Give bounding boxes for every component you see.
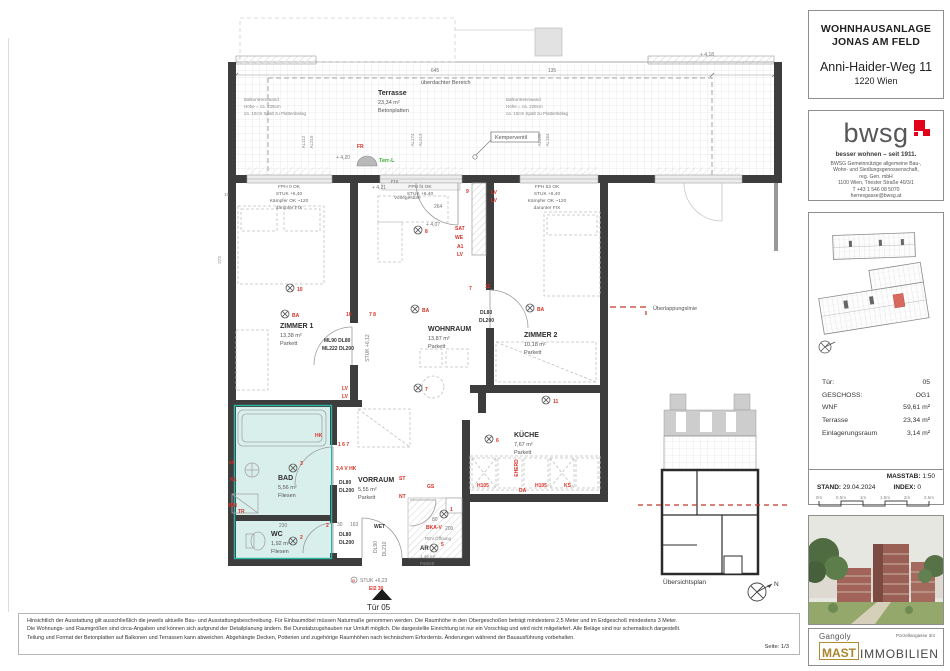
balkontrennwand-left-2: Höhe = ca. 228cm — [244, 104, 281, 109]
svg-text:3: 3 — [300, 461, 303, 467]
sanitary-highlight — [235, 406, 332, 559]
svg-text:13,38 m²: 13,38 m² — [280, 333, 302, 339]
svg-text:7,67 m²: 7,67 m² — [514, 442, 533, 448]
svg-text:Fliesen: Fliesen — [271, 549, 289, 555]
svg-text:ML222 DL200: ML222 DL200 — [322, 346, 354, 352]
room-label-ar: AR — [420, 546, 429, 552]
svg-text:N: N — [774, 581, 779, 588]
dim-645: 645 — [431, 68, 440, 74]
svg-text:163: 163 — [350, 522, 359, 528]
svg-text:DA: DA — [519, 488, 527, 494]
bwsg-block: bwsg besser wohnen – seit 1911. BWSG Gem… — [808, 110, 944, 201]
svg-text:STUK +6,12: STUK +6,12 — [365, 334, 371, 362]
al213: AL213 — [418, 133, 423, 147]
disclaimer-line: Die Wohnungs- und Raumgrößen sind circa-… — [27, 625, 799, 633]
terrasse-area: 23,34 m² — [378, 100, 400, 106]
balkontrennwand-left-1: Balkontrennwand — [244, 97, 279, 102]
room-label-wohnraum: WOHNRAUM — [428, 326, 471, 333]
info-table: Tür:05 GESCHOSS:OG1 WNF59,61 m² Terrasse… — [822, 376, 930, 440]
svg-text:TR: TR — [238, 509, 245, 515]
scale-bar: 0m 0.5m 1m 1.5m 2m 2.5m — [815, 494, 939, 508]
svg-text:0.5m: 0.5m — [836, 495, 846, 500]
highlighted-unit — [893, 293, 905, 307]
table-row: Einlagerungsraum3,14 m² — [822, 427, 930, 440]
room-label-zimmer1: ZIMMER 1 — [280, 323, 314, 330]
svg-text:LV: LV — [342, 394, 349, 400]
svg-text:GS: GS — [427, 484, 435, 490]
table-row: WNF59,61 m² — [822, 402, 930, 415]
svg-text:10: 10 — [297, 287, 303, 293]
svg-text:15: 15 — [224, 192, 230, 197]
terr-l-label: Terr-L — [379, 158, 395, 164]
plan-sheet: 645 135 + 4,18 Balkontrennwand Höhe = ca… — [0, 0, 950, 671]
al108: AL108 — [537, 133, 542, 147]
svg-text:264: 264 — [434, 204, 443, 210]
svg-text:273: 273 — [217, 256, 222, 264]
svg-text:darunter FIX: darunter FIX — [276, 205, 303, 211]
svg-text:DL200: DL200 — [479, 318, 494, 324]
svg-text:2.5m: 2.5m — [924, 495, 934, 500]
svg-text:H105: H105 — [535, 483, 547, 489]
svg-text:Parkett: Parkett — [358, 495, 376, 501]
svg-text:Kämpfer OK ~120: Kämpfer OK ~120 — [270, 198, 309, 204]
partner-block: Gangoly Porzellangasse 3/4 MAST IMMOBILI… — [808, 628, 944, 666]
terrace-area — [234, 18, 776, 175]
al164: AL164 — [545, 133, 550, 147]
al174: AL174 — [410, 133, 415, 147]
immobilien-wordmark: IMMOBILIEN — [860, 648, 939, 660]
bwsg-square-icon — [914, 132, 918, 136]
mast-wordmark: MAST — [819, 642, 859, 660]
svg-text:WET: WET — [374, 524, 385, 530]
svg-text:FIX: FIX — [391, 179, 399, 185]
svg-text:H105: H105 — [477, 483, 489, 489]
overlap-line: Überlappungslinie — [610, 305, 697, 315]
site-plan-map — [809, 214, 943, 364]
svg-text:KS: KS — [564, 483, 572, 489]
svg-text:230: 230 — [279, 523, 288, 529]
svg-text:5,56 m²: 5,56 m² — [278, 485, 297, 491]
svg-text:G: G — [352, 578, 355, 583]
installation-shaft — [472, 183, 486, 255]
svg-text:7: 7 — [425, 387, 428, 393]
level-420: + 4,20 — [336, 155, 350, 161]
svg-text:Parkett: Parkett — [428, 344, 446, 350]
svg-text:A1: A1 — [457, 244, 464, 250]
svg-text:BA: BA — [292, 313, 300, 319]
project-street: Anni-Haider-Weg 11 — [809, 60, 943, 74]
svg-text:NT: NT — [399, 494, 406, 500]
project-name-line1: WOHNHAUSANLAGE — [809, 23, 943, 36]
level-418: + 4,18 — [700, 52, 714, 58]
svg-text:1m: 1m — [860, 495, 867, 500]
svg-text:DL80: DL80 — [339, 480, 351, 486]
stand-row: STAND: 29.04.2024 INDEX: 0 — [817, 484, 921, 491]
svg-text:LV: LV — [457, 252, 464, 258]
balkontrennwand-right-2: Höhe = ca. 228cm — [506, 104, 543, 109]
svg-text:Fliesen: Fliesen — [278, 493, 296, 499]
floorplan-drawing: 645 135 + 4,18 Balkontrennwand Höhe = ca… — [0, 0, 800, 612]
room-label-zimmer2: ZIMMER 2 — [524, 332, 558, 339]
svg-text:DL210: DL210 — [382, 541, 388, 556]
svg-text:Parkett: Parkett — [420, 561, 435, 566]
svg-text:darunter FIX: darunter FIX — [534, 205, 561, 211]
svg-text:6: 6 — [496, 438, 499, 444]
room-label-kueche: KÜCHE — [514, 430, 539, 439]
architect-address: Porzellangasse 3/4 — [896, 633, 935, 638]
svg-text:11: 11 — [485, 284, 491, 290]
balkontrennwand-left-3: ca. 10cm Spalt zu Plattenbelag — [244, 111, 307, 116]
svg-text:9: 9 — [466, 189, 469, 195]
page-number: Seite: 1/3 — [765, 643, 790, 652]
bwsg-address: BWSG Gemeinnützige allgemeine Bau-, Wohn… — [809, 161, 943, 199]
door-number: Tür 05 — [367, 603, 391, 612]
overview-plan: Übersichtsplan — [638, 394, 790, 586]
disclaimer-line: Hinsichtlich der Ausstattung gilt aussch… — [27, 617, 799, 625]
scale-row: MASSTAB: 1:50 — [817, 473, 935, 480]
svg-text:Parkett: Parkett — [514, 450, 532, 456]
table-row: GESCHOSS:OG1 — [822, 389, 930, 402]
svg-text:10,18 m²: 10,18 m² — [524, 342, 546, 348]
project-name-line2: JONAS AM FELD — [809, 36, 943, 49]
title-block: WOHNHAUSANLAGE JONAS AM FELD Anni-Haider… — [808, 10, 944, 99]
key-plan-block: Tür:05 GESCHOSS:OG1 WNF59,61 m² Terrasse… — [808, 212, 944, 505]
svg-text:EHERD: EHERD — [514, 459, 520, 477]
disclaimer-line: Teilung und Format der Betonplatten auf … — [27, 634, 799, 642]
architect-name: Gangoly — [819, 632, 851, 641]
svg-text:+ 4,07: + 4,07 — [426, 222, 440, 228]
svg-text:Überlappungslinie: Überlappungslinie — [653, 305, 697, 312]
disclaimer: Hinsichtlich der Ausstattung gilt aussch… — [18, 613, 800, 655]
svg-text:WE: WE — [455, 235, 464, 241]
svg-text:7 8: 7 8 — [369, 312, 376, 318]
svg-text:3,4 V HK: 3,4 V HK — [336, 466, 357, 472]
svg-text:2: 2 — [300, 535, 303, 541]
site-compass-icon — [819, 341, 835, 353]
overview-caption: Übersichtsplan — [663, 578, 706, 586]
entrance: G STUK +6,23 EI2 30 Tür 05 — [351, 577, 392, 612]
svg-text:7: 7 — [469, 286, 472, 292]
svg-text:DL200: DL200 — [339, 540, 354, 546]
room-label-wc: WC — [271, 531, 283, 538]
svg-text:200: 200 — [445, 526, 454, 532]
fr-label: FR — [357, 144, 364, 150]
bwsg-logo: bwsg — [843, 118, 908, 149]
svg-text:+ 4,21: + 4,21 — [372, 185, 386, 191]
dim-135: 135 — [548, 68, 557, 74]
divider — [809, 469, 943, 470]
room-label-bad: BAD — [278, 475, 293, 482]
svg-text:30: 30 — [337, 522, 343, 528]
svg-text:2m: 2m — [904, 495, 911, 500]
svg-text:REV.Öffnung: REV.Öffnung — [425, 535, 452, 541]
balkontrennwand-right-1: Balkontrennwand — [506, 97, 541, 102]
covered-area-label: überdachter Bereich — [421, 80, 471, 86]
room-label-terrasse: Terrasse — [378, 90, 407, 97]
svg-text:BKA-V: BKA-V — [426, 525, 442, 531]
project-city: 1220 Wien — [809, 76, 943, 86]
al216: AL216 — [309, 135, 314, 149]
svg-text:13,87 m²: 13,87 m² — [428, 336, 450, 342]
svg-text:11: 11 — [553, 399, 559, 405]
al112: AL112 — [301, 135, 306, 148]
svg-text:5,55 m²: 5,55 m² — [358, 487, 377, 493]
svg-text:FPH 0 OK: FPH 0 OK — [278, 184, 301, 190]
svg-text:Kämpfer OK ~120: Kämpfer OK ~120 — [528, 198, 567, 204]
svg-text:0m: 0m — [816, 495, 823, 500]
bwsg-square-icon — [923, 129, 930, 136]
svg-text:1,92 m²: 1,92 m² — [271, 541, 290, 547]
svg-text:BA: BA — [422, 308, 430, 314]
svg-text:BA: BA — [537, 307, 545, 313]
building-rendering — [808, 515, 944, 625]
table-row: Terrasse23,34 m² — [822, 414, 930, 427]
svg-text:HK: HK — [315, 433, 323, 439]
terrasse-floor: Betonplatten — [378, 108, 409, 114]
balkontrennwand-right-3: ca. 10cm Spalt zu Plattenbelag — [506, 111, 569, 116]
svg-text:DL80: DL80 — [480, 310, 492, 316]
room-label-vorraum: VORRAUM — [358, 477, 394, 484]
svg-text:ML90 DL80: ML90 DL80 — [324, 338, 351, 344]
mast-logo: MAST IMMOBILIEN — [819, 642, 935, 660]
svg-text:ST: ST — [399, 476, 405, 482]
svg-text:STUK +6,40: STUK +6,40 — [534, 191, 561, 197]
svg-text:1.5m: 1.5m — [880, 495, 890, 500]
rendering-illustration — [809, 516, 943, 624]
svg-text:STUK +6,40: STUK +6,40 — [276, 191, 303, 197]
svg-text:Parkett: Parkett — [524, 350, 542, 356]
north-compass-icon: N — [748, 581, 779, 601]
svg-text:1,49 m²: 1,49 m² — [420, 554, 436, 559]
svg-text:1: 1 — [450, 507, 453, 513]
svg-text:WM: WM — [228, 503, 237, 509]
svg-text:1 6 7: 1 6 7 — [338, 442, 349, 448]
svg-text:LV: LV — [491, 190, 498, 196]
bwsg-tagline: besser wohnen – seit 1911. — [809, 151, 943, 158]
svg-text:2: 2 — [326, 523, 329, 529]
svg-text:8: 8 — [425, 229, 428, 235]
svg-text:STUK +6,23: STUK +6,23 — [360, 578, 388, 584]
svg-text:FPH f4 OK: FPH f4 OK — [408, 184, 432, 190]
svg-text:Parkett: Parkett — [280, 341, 298, 347]
svg-text:10: 10 — [346, 312, 352, 318]
svg-text:LV: LV — [491, 198, 498, 204]
svg-text:80: 80 — [432, 517, 438, 523]
table-row: Tür:05 — [822, 376, 930, 389]
svg-text:DL200: DL200 — [339, 488, 354, 494]
svg-text:DL90: DL90 — [373, 541, 379, 553]
kemperventil-label: Kemperventil — [495, 135, 527, 141]
svg-text:Vorlegestufe: Vorlegestufe — [394, 195, 421, 201]
svg-text:DL80: DL80 — [339, 532, 351, 538]
bwsg-wordmark: bwsg — [843, 118, 908, 148]
svg-text:FPH 62 OK: FPH 62 OK — [535, 184, 560, 190]
svg-text:LV: LV — [342, 386, 349, 392]
svg-text:x4: x4 — [229, 460, 235, 466]
svg-text:5: 5 — [441, 542, 444, 548]
svg-text:SAT: SAT — [455, 226, 465, 232]
svg-text:KL: KL — [230, 477, 237, 483]
